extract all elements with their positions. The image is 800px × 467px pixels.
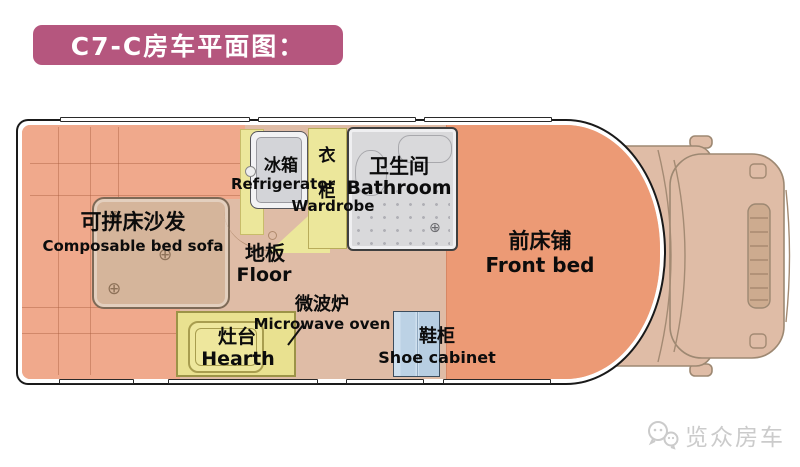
- roof-rail-segment: [424, 117, 552, 122]
- sofa-panel-line: [30, 195, 242, 196]
- roof-rail-segment: [60, 117, 250, 122]
- microwave-label-zh: 微波炉: [295, 296, 349, 315]
- floor-label-zh: 地板: [245, 243, 285, 264]
- floor-rail-segment: [168, 379, 318, 384]
- front-bed-label-en: Front bed: [486, 255, 595, 276]
- counter-knob-icon: [268, 231, 277, 240]
- cab-grille-icon: [748, 204, 770, 308]
- floor-rail-segment: [59, 379, 134, 384]
- rv-floorplan-page: C7-C房车平面图：: [0, 0, 800, 467]
- page-title: C7-C房车平面图：: [71, 27, 305, 63]
- sofa-panel-line: [118, 127, 119, 197]
- brand-watermark: 览众房车: [646, 418, 785, 452]
- cup-holder-icon: ⊕: [107, 281, 121, 298]
- shoe-cabinet-label-en: Shoe cabinet: [378, 350, 495, 367]
- sofa-label-zh: 可拼床沙发: [81, 211, 186, 233]
- bathroom-label-en: Bathroom: [346, 179, 451, 199]
- title-banner: C7-C房车平面图：: [33, 25, 343, 65]
- wardrobe-label-en: Wardrobe: [292, 199, 375, 215]
- roof-rail-segment: [258, 117, 416, 122]
- bathroom-label-zh: 卫生间: [369, 156, 429, 177]
- hearth-label-en: Hearth: [201, 350, 275, 370]
- sofa-panel-line: [30, 163, 242, 164]
- wechat-icon: [646, 420, 680, 450]
- shoe-cabinet-label-zh: 鞋柜: [419, 328, 455, 347]
- refrigerator-label-zh: 冰箱: [264, 158, 298, 176]
- floor-label-en: Floor: [237, 266, 292, 286]
- drain-icon: ⊕: [429, 221, 441, 235]
- microwave-label-en: Microwave oven: [254, 317, 391, 333]
- brand-text: 览众房车: [685, 418, 785, 452]
- sofa-panel-line: [22, 333, 180, 334]
- front-bed-label-zh: 前床铺: [509, 230, 572, 252]
- cab-bumper-line: [786, 190, 790, 322]
- sofa-label-en: Composable bed sofa: [42, 239, 223, 255]
- floor-rail-segment: [443, 379, 551, 384]
- wardrobe-label-zh1: 衣: [319, 148, 336, 166]
- floor-rail-segment: [346, 379, 424, 384]
- hearth-label-zh: 灶台: [218, 328, 256, 348]
